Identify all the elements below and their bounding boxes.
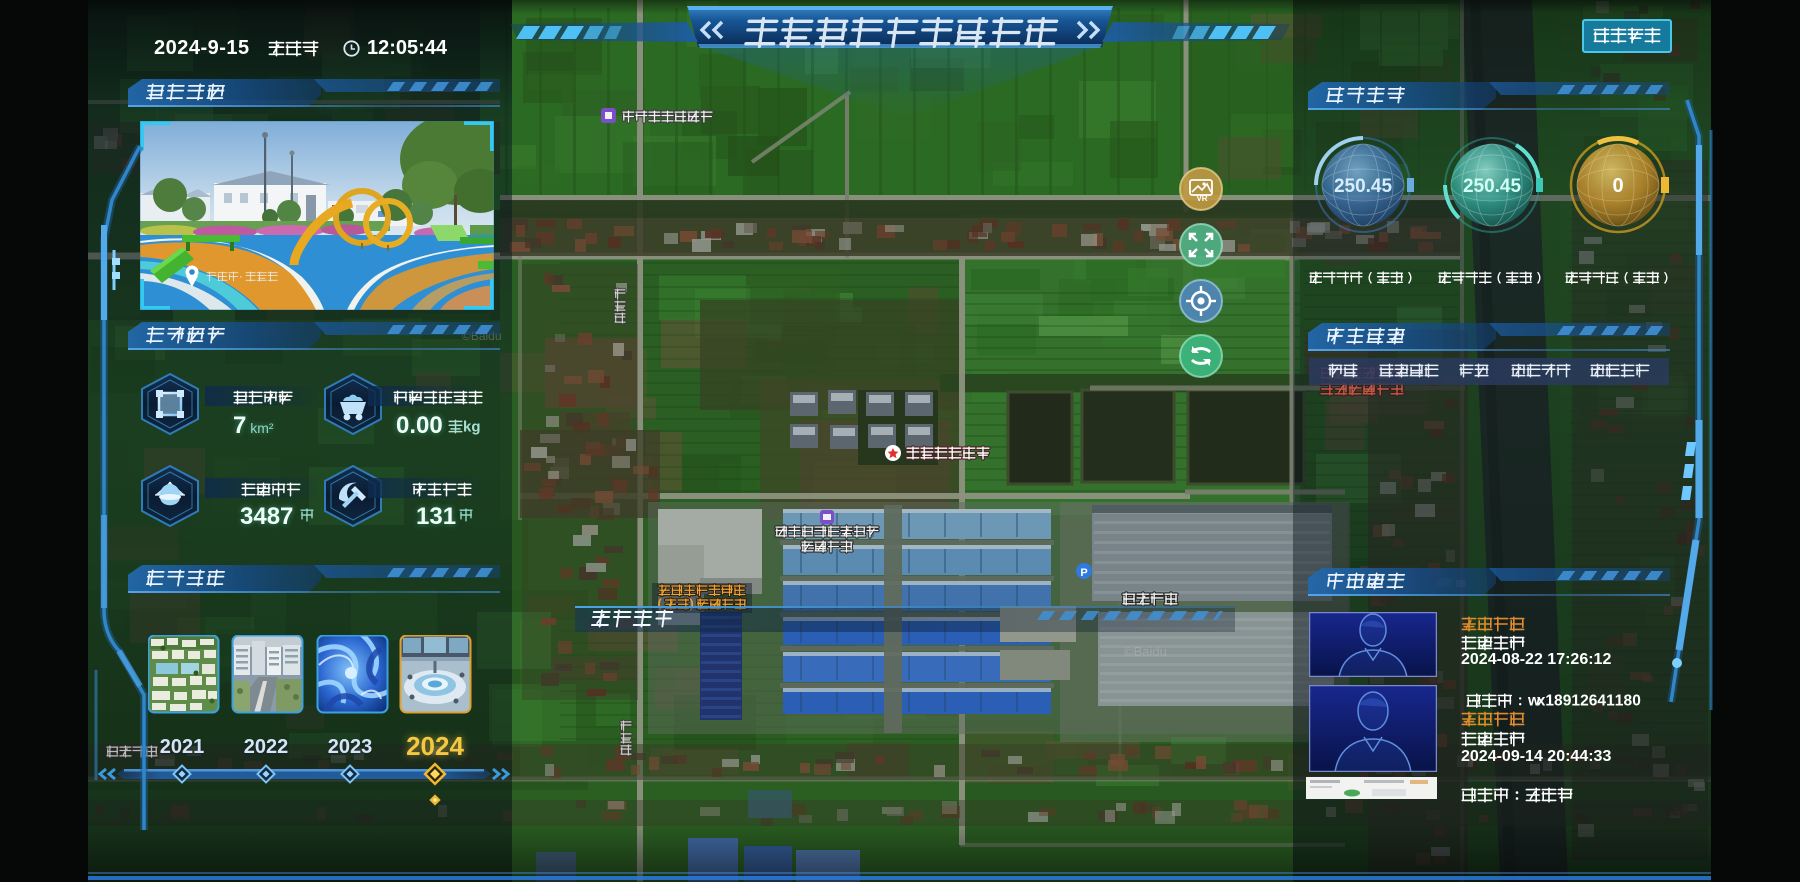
- svg-text:2: 2: [1580, 693, 1589, 710]
- svg-text:4: 4: [1597, 693, 1606, 710]
- svg-text:1: 1: [1606, 693, 1615, 710]
- svg-text:8: 8: [1624, 693, 1633, 710]
- svg-text:1: 1: [1615, 693, 1624, 710]
- svg-text:·: ·: [239, 271, 243, 283]
- svg-text:g: g: [471, 418, 480, 435]
- svg-text:8: 8: [1554, 693, 1563, 710]
- svg-text:1: 1: [1571, 693, 1580, 710]
- svg-text:x: x: [1537, 693, 1546, 710]
- svg-text:9: 9: [1563, 693, 1572, 710]
- svg-text:0: 0: [1632, 693, 1641, 710]
